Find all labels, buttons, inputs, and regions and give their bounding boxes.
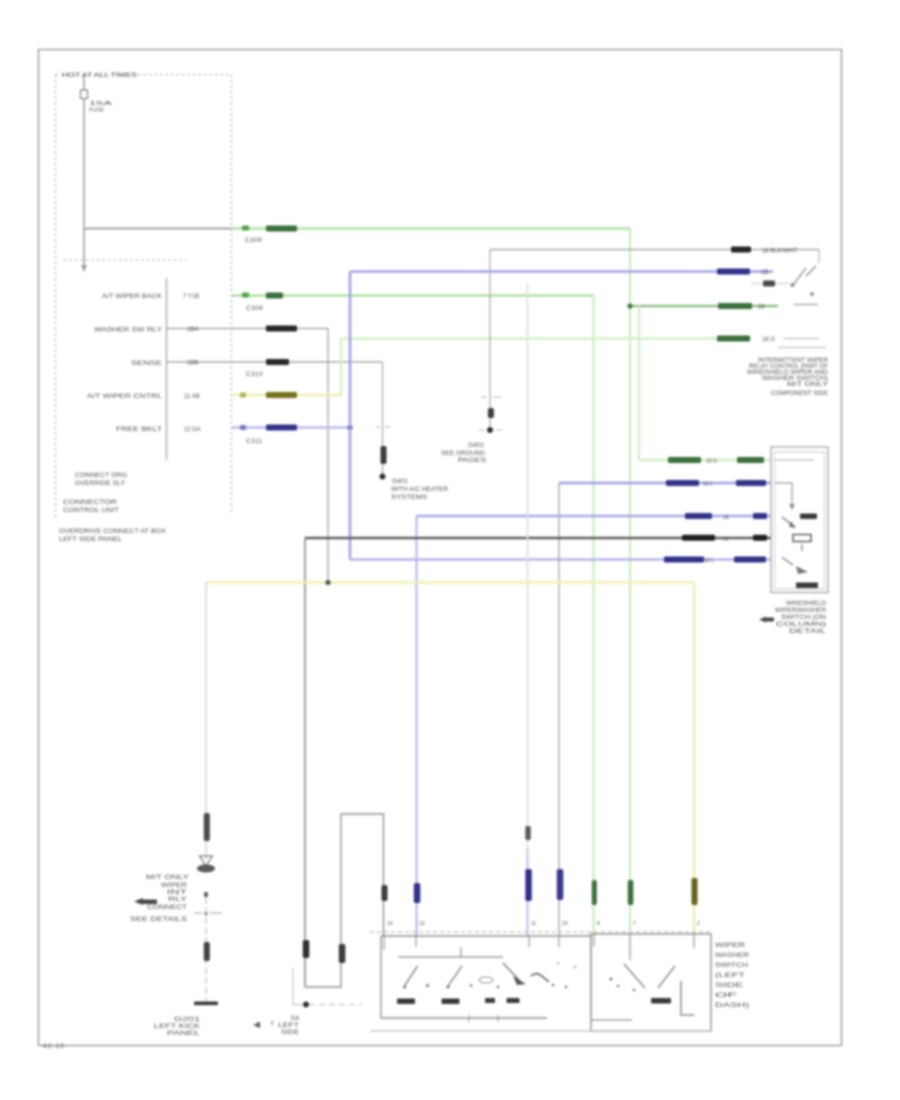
svg-text:CONNECTOR: CONNECTOR <box>63 499 117 506</box>
svg-text:FUSE: FUSE <box>89 108 104 114</box>
svg-text:1BA: 1BA <box>187 327 198 333</box>
svg-text:G401: G401 <box>392 478 408 485</box>
svg-text:8: 8 <box>597 921 600 927</box>
svg-text:C309: C309 <box>245 237 262 244</box>
svg-text:SWITCH: SWITCH <box>715 963 748 969</box>
svg-text:COLUMN): COLUMN) <box>776 622 826 628</box>
svg-text:2: 2 <box>697 921 700 927</box>
svg-text:DASH): DASH) <box>715 1003 749 1009</box>
svg-text:11: 11 <box>531 921 536 927</box>
svg-text:18: 18 <box>723 515 729 521</box>
svg-text:RLY: RLY <box>168 896 188 903</box>
svg-text:SYSTEMS: SYSTEMS <box>391 494 428 501</box>
svg-text:OVERDRIVE CONNECT AT BOX: OVERDRIVE CONNECT AT BOX <box>59 528 167 535</box>
svg-text:1B: 1B <box>761 270 768 276</box>
svg-text:WINDSHIELD: WINDSHIELD <box>786 601 827 607</box>
svg-text:7 Y1B: 7 Y1B <box>183 294 199 300</box>
svg-text:LEFT KICK: LEFT KICK <box>154 1023 201 1030</box>
svg-text:CONNECT ORG: CONNECT ORG <box>75 472 127 479</box>
svg-text:CONTROL UNIT: CONTROL UNIT <box>63 507 119 514</box>
svg-text:SIDE: SIDE <box>715 983 743 989</box>
svg-text:LEFT: LEFT <box>278 1022 299 1029</box>
svg-text:18 BLK/WHT: 18 BLK/WHT <box>762 249 797 255</box>
svg-text:18: 18 <box>723 537 729 543</box>
svg-text:COMPONENT SIDE: COMPONENT SIDE <box>771 391 828 397</box>
svg-text:G4: G4 <box>291 1015 300 1022</box>
svg-text:A/T WIPER BACK: A/T WIPER BACK <box>102 293 163 300</box>
svg-text:PANEL: PANEL <box>167 1030 201 1037</box>
svg-text:15A: 15A <box>89 101 113 107</box>
svg-text:G402: G402 <box>468 442 484 449</box>
svg-text:WITH A/C HEATER: WITH A/C HEATER <box>391 486 448 493</box>
svg-text:42-10: 42-10 <box>43 1043 64 1050</box>
svg-text:18 L: 18 L <box>703 482 713 488</box>
svg-text:INT: INT <box>167 889 187 896</box>
svg-text:SWITCH (ON: SWITCH (ON <box>781 615 826 621</box>
svg-text:SENSE: SENSE <box>131 360 163 367</box>
svg-text:OVERRIDE SLY: OVERRIDE SLY <box>75 480 126 487</box>
svg-text:C311: C311 <box>246 438 263 445</box>
svg-text:SIDE: SIDE <box>281 1029 299 1036</box>
svg-text:LEFT SIDE PANEL: LEFT SIDE PANEL <box>59 536 122 543</box>
svg-text:WASHER SW RLY: WASHER SW RLY <box>94 327 163 334</box>
svg-text:WIPER: WIPER <box>161 882 188 889</box>
svg-text:1BB: 1BB <box>187 361 198 367</box>
svg-text:C308: C308 <box>246 305 263 312</box>
svg-text:FREE BKLT: FREE BKLT <box>116 426 162 433</box>
svg-text:WASHER: WASHER <box>715 953 750 959</box>
svg-text:HOT AT ALL TIMES: HOT AT ALL TIMES <box>62 72 138 79</box>
svg-text:M/T ONLY: M/T ONLY <box>787 382 828 388</box>
svg-text:7: 7 <box>633 921 636 927</box>
svg-text:18 G: 18 G <box>706 459 717 465</box>
svg-text:PAGES: PAGES <box>458 457 487 464</box>
svg-text:18: 18 <box>758 305 765 311</box>
svg-text:A/T WIPER CNTRL: A/T WIPER CNTRL <box>87 393 162 400</box>
svg-text:11 AB: 11 AB <box>184 394 200 400</box>
svg-text:CONNECT: CONNECT <box>147 904 187 911</box>
svg-text:SEE DETAILS: SEE DETAILS <box>130 916 187 923</box>
svg-text:M/T ONLY: M/T ONLY <box>146 874 190 881</box>
svg-text:18 G: 18 G <box>762 337 775 343</box>
svg-text:(LEFT: (LEFT <box>715 973 746 979</box>
svg-text:SEE GROUND: SEE GROUND <box>441 450 485 457</box>
svg-text:10: 10 <box>562 921 568 927</box>
svg-text:WIPER: WIPER <box>715 943 746 949</box>
svg-text:G201: G201 <box>174 1016 201 1023</box>
svg-text:DETAIL: DETAIL <box>789 629 827 635</box>
svg-text:13: 13 <box>419 921 425 927</box>
svg-text:18 L: 18 L <box>704 558 714 564</box>
svg-text:14: 14 <box>387 921 393 927</box>
svg-text:12 DA: 12 DA <box>184 427 201 433</box>
svg-text:WIPER/WASHER: WIPER/WASHER <box>775 608 827 614</box>
svg-text:OF: OF <box>715 993 738 999</box>
svg-text:C310: C310 <box>246 371 263 378</box>
